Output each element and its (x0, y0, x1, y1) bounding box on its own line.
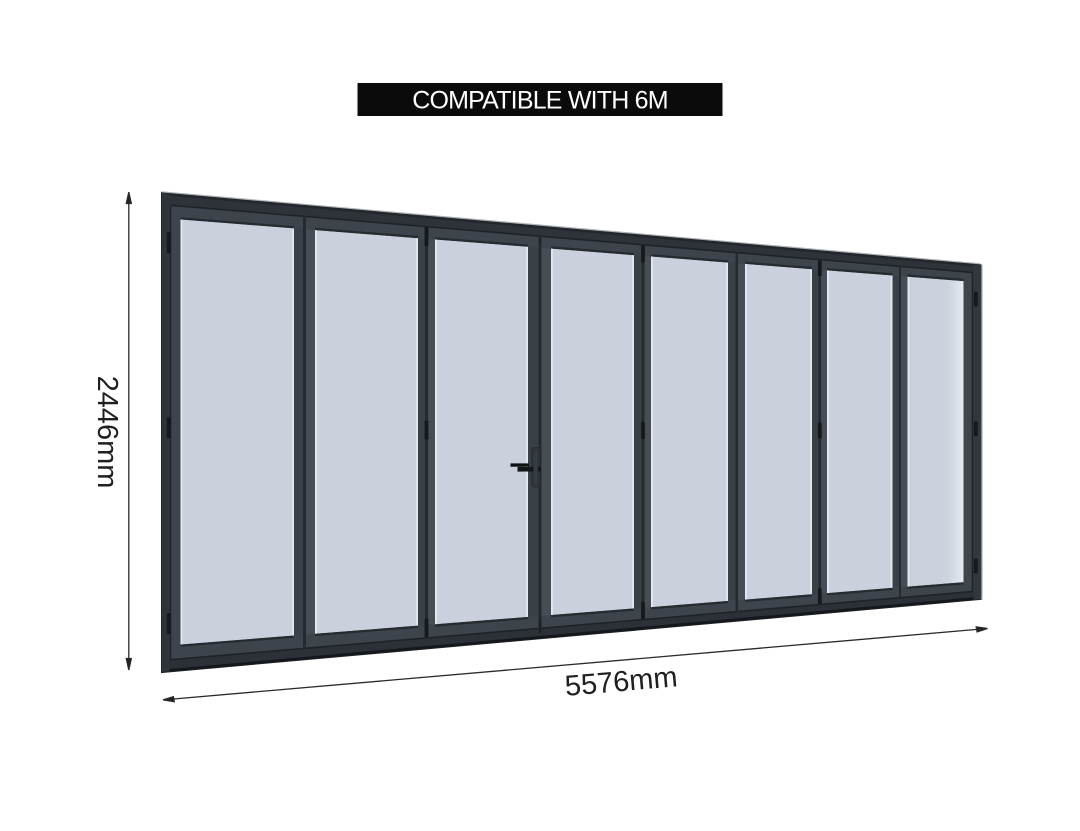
svg-text:COMPATIBLE WITH 6M: COMPATIBLE WITH 6M (412, 87, 668, 115)
svg-text:2446mm: 2446mm (91, 376, 123, 489)
svg-text:5576mm: 5576mm (564, 661, 679, 703)
